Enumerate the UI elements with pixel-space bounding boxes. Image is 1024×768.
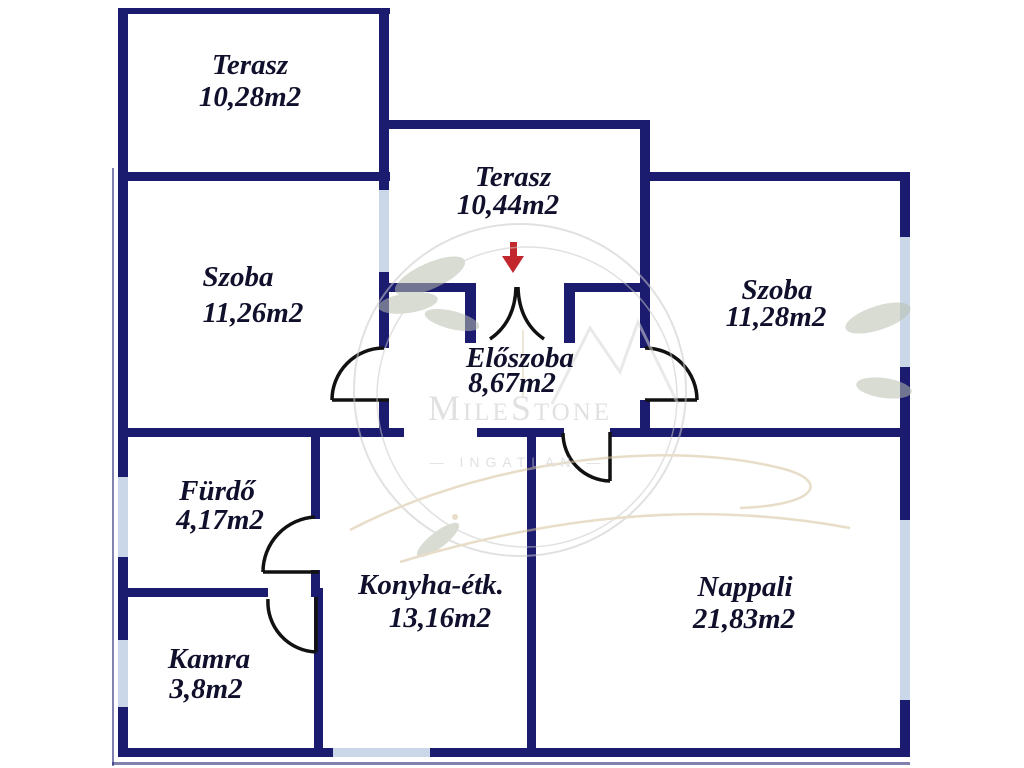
- watermark-sub-text: — INGATLAN —: [430, 454, 607, 470]
- room-name: Konyha-étk.: [357, 569, 504, 601]
- wall-segment: [564, 283, 575, 343]
- room-area: 13,16m2: [389, 602, 491, 634]
- room-label-szoba-left: Szoba 11,26m2: [203, 261, 304, 329]
- floorplan-image: MileStone — INGATLAN — Terasz 10,28m2 Sz…: [0, 0, 1024, 768]
- room-area: 10,28m2: [199, 81, 301, 113]
- room-label-terasz-upper: Terasz 10,28m2: [199, 49, 301, 113]
- window-furdo: [118, 477, 128, 557]
- room-label-konyha: Konyha-étk. 13,16m2: [357, 569, 504, 634]
- wall-segment: [527, 432, 536, 752]
- wall-segment: [575, 283, 650, 292]
- wall-segment: [465, 283, 476, 343]
- wall-offset-line: [112, 168, 114, 766]
- watermark-dot: [452, 514, 458, 520]
- room-area: 11,28m2: [726, 301, 827, 333]
- room-name: Fürdő: [178, 475, 256, 507]
- swoosh-curve: [400, 514, 850, 562]
- room-label-furdo: Fürdő 4,17m2: [175, 475, 264, 536]
- floorplan-svg: MileStone — INGATLAN — Terasz 10,28m2 Sz…: [0, 0, 1024, 768]
- wall-offset-line: [112, 762, 910, 765]
- room-name: Nappali: [696, 571, 792, 603]
- room-label-terasz-middle: Terasz 10,44m2: [457, 161, 559, 221]
- wall-segment: [477, 428, 564, 437]
- door-kamra: [268, 597, 316, 652]
- window-kamra: [118, 640, 128, 707]
- wall-segment: [118, 172, 390, 181]
- room-name: Terasz: [212, 49, 289, 81]
- wall-segment: [379, 8, 389, 190]
- wall-segment: [640, 120, 650, 348]
- wall-segment: [118, 8, 390, 14]
- window-nappali: [900, 520, 910, 700]
- window-szoba-terasz: [379, 190, 389, 272]
- entrance-arrow-stem: [510, 242, 517, 258]
- room-name: Szoba: [203, 261, 274, 293]
- wall-segment: [379, 120, 650, 129]
- wall-segment: [118, 748, 910, 757]
- room-area: 11,26m2: [203, 297, 304, 329]
- room-area: 21,83m2: [692, 603, 795, 635]
- door-szoba-left: [332, 348, 389, 400]
- room-area: 3,8m2: [168, 673, 242, 705]
- room-label-kamra: Kamra 3,8m2: [167, 643, 250, 705]
- wall-segment: [610, 428, 910, 437]
- room-area: 8,67m2: [468, 367, 556, 399]
- wall-segment: [645, 172, 910, 181]
- room-area: 10,44m2: [457, 189, 559, 221]
- window-szoba-right: [900, 237, 910, 367]
- room-labels: Terasz 10,28m2 Szoba 11,26m2 Terasz 10,4…: [167, 49, 826, 705]
- door-entrance-double: [490, 287, 544, 339]
- door-furdo: [263, 517, 319, 572]
- room-area: 4,17m2: [175, 504, 264, 536]
- watermark: MileStone — INGATLAN —: [350, 224, 914, 562]
- entrance-arrow-head: [502, 256, 524, 273]
- window-konyha: [333, 748, 430, 757]
- wall-segment: [118, 588, 268, 597]
- wall-segment: [311, 432, 320, 519]
- room-name: Kamra: [167, 643, 250, 675]
- room-label-nappali: Nappali 21,83m2: [692, 571, 795, 635]
- room-label-szoba-right: Szoba 11,28m2: [726, 274, 827, 333]
